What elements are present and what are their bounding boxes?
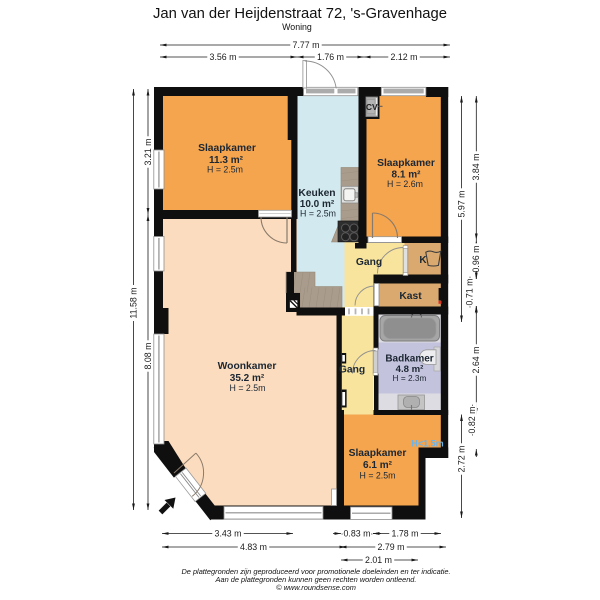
svg-text:H = 2.5m: H = 2.5m bbox=[207, 165, 243, 175]
svg-text:Slaapkamer: Slaapkamer bbox=[349, 448, 407, 459]
svg-text:8.08 m: 8.08 m bbox=[143, 343, 153, 370]
svg-text:Slaapkamer: Slaapkamer bbox=[198, 143, 256, 154]
svg-text:1.76 m: 1.76 m bbox=[317, 52, 344, 62]
svg-text:Jan van der Heijdenstraat 72,: Jan van der Heijdenstraat 72, 's-Gravenh… bbox=[153, 6, 447, 22]
svg-text:4.83 m: 4.83 m bbox=[240, 542, 267, 552]
svg-text:K: K bbox=[419, 255, 427, 266]
svg-text:CV: CV bbox=[366, 102, 378, 112]
svg-text:H = 2.3m: H = 2.3m bbox=[393, 373, 427, 383]
svg-text:11.58 m: 11.58 m bbox=[128, 287, 138, 318]
svg-text:Keuken: Keuken bbox=[298, 188, 335, 199]
svg-text:·0.71 m·: ·0.71 m· bbox=[465, 276, 475, 309]
svg-text:5.97 m: 5.97 m bbox=[456, 191, 466, 218]
svg-text:2.64 m: 2.64 m bbox=[471, 347, 481, 374]
svg-text:1.78 m: 1.78 m bbox=[392, 528, 419, 538]
svg-text:2.01 m: 2.01 m bbox=[365, 555, 392, 565]
svg-text:© www.roundsense.com: © www.roundsense.com bbox=[276, 583, 356, 592]
svg-text:Woning: Woning bbox=[282, 22, 312, 32]
svg-text:H = 2.5m: H = 2.5m bbox=[230, 383, 266, 393]
svg-text:·0.82 m·: ·0.82 m· bbox=[467, 404, 477, 437]
svg-text:6.1 m²: 6.1 m² bbox=[363, 460, 393, 471]
svg-text:Gang: Gang bbox=[339, 365, 365, 376]
svg-text:3.84 m: 3.84 m bbox=[471, 154, 481, 181]
svg-text:H = 2.5m: H = 2.5m bbox=[300, 209, 336, 219]
svg-text:3.43 m: 3.43 m bbox=[215, 528, 242, 538]
svg-text:3.21 m: 3.21 m bbox=[143, 139, 153, 166]
svg-text:H = 2.6m: H = 2.6m bbox=[387, 179, 423, 189]
svg-text:0.96 m: 0.96 m bbox=[471, 246, 481, 273]
svg-text:2.72 m: 2.72 m bbox=[456, 446, 466, 473]
svg-text:2.79 m: 2.79 m bbox=[378, 542, 405, 552]
svg-text:Woonkamer: Woonkamer bbox=[218, 361, 277, 372]
svg-text:·0.83 m·: ·0.83 m· bbox=[341, 528, 374, 538]
svg-text:7.77 m: 7.77 m bbox=[293, 40, 320, 50]
svg-text:2.12 m: 2.12 m bbox=[391, 52, 418, 62]
svg-text:H<1.5m: H<1.5m bbox=[411, 439, 443, 449]
svg-text:Gang: Gang bbox=[356, 257, 382, 268]
svg-text:Slaapkamer: Slaapkamer bbox=[377, 158, 435, 169]
svg-text:Badkamer: Badkamer bbox=[385, 354, 433, 365]
svg-text:3.56 m: 3.56 m bbox=[210, 52, 237, 62]
svg-text:Kast: Kast bbox=[399, 291, 422, 302]
svg-text:H = 2.5m: H = 2.5m bbox=[360, 471, 396, 481]
